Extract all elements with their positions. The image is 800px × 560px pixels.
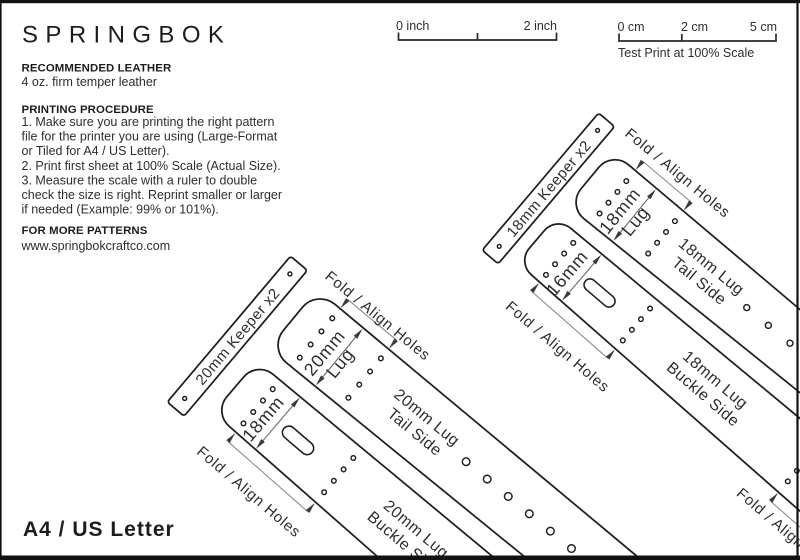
svg-text:4 oz. firm temper leather: 4 oz. firm temper leather	[22, 75, 157, 89]
svg-text:0 inch: 0 inch	[396, 19, 429, 33]
svg-text:3. Measure the scale with a ru: 3. Measure the scale with a ruler to dou…	[22, 173, 258, 187]
svg-text:www.springbokcraftco.com: www.springbokcraftco.com	[21, 239, 171, 253]
svg-text:1. Make sure you are printing: 1. Make sure you are printing the right …	[22, 115, 275, 129]
svg-text:Test Print at 100% Scale: Test Print at 100% Scale	[618, 46, 754, 60]
svg-text:FOR MORE PATTERNS: FOR MORE PATTERNS	[22, 225, 148, 237]
svg-text:2 cm: 2 cm	[681, 20, 708, 34]
svg-text:5 cm: 5 cm	[750, 20, 777, 34]
svg-text:RECOMMENDED LEATHER: RECOMMENDED LEATHER	[22, 63, 172, 75]
svg-text:or Tiled for A4 / US Letter).: or Tiled for A4 / US Letter).	[22, 144, 170, 158]
svg-text:if needed (Example: 99% or 101: if needed (Example: 99% or 101%).	[22, 203, 219, 217]
svg-text:SPRINGBOK: SPRINGBOK	[22, 22, 231, 49]
svg-text:0 cm: 0 cm	[618, 20, 645, 34]
svg-text:check the size is right. Repri: check the size is right. Reprint smaller…	[22, 188, 283, 202]
svg-text:A4 / US Letter: A4 / US Letter	[23, 518, 175, 541]
svg-text:2 inch: 2 inch	[524, 19, 557, 33]
svg-text:2. Print first sheet at 100% S: 2. Print first sheet at 100% Scale (Actu…	[22, 159, 281, 173]
svg-text:file for the printer you are u: file for the printer you are using (Larg…	[22, 130, 278, 144]
